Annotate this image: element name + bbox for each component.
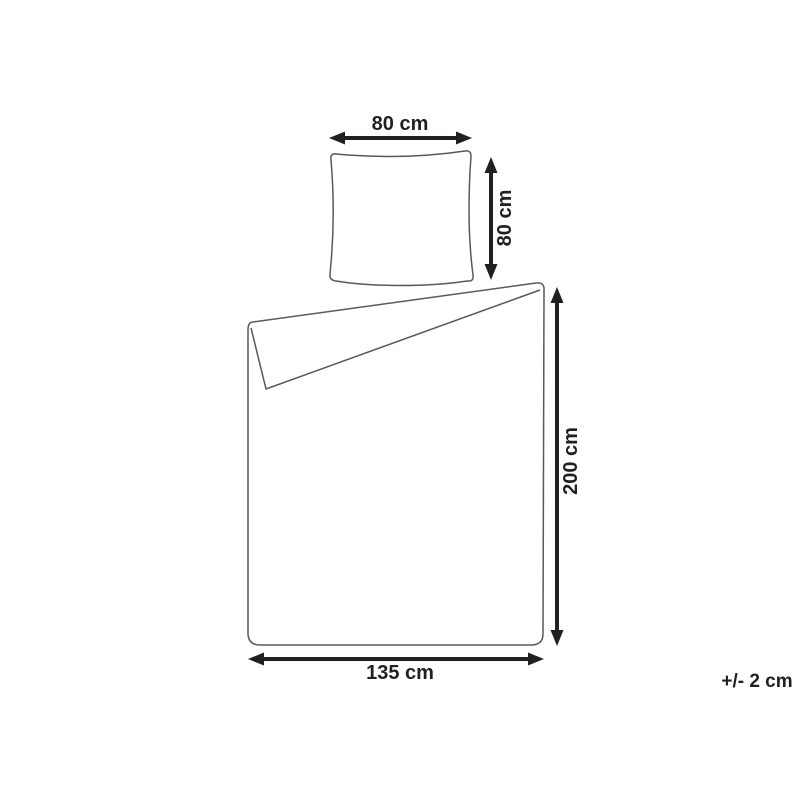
duvet-height-label: 200 cm <box>560 427 582 495</box>
duvet-width-arrowhead-right <box>528 653 544 666</box>
duvet-width-arrowhead-left <box>248 653 264 666</box>
pillow-width-arrowhead-left <box>329 132 345 145</box>
pillow-outline <box>330 151 473 286</box>
tolerance-label: +/- 2 cm <box>721 671 792 692</box>
pillow <box>330 151 473 286</box>
pillow-height-label: 80 cm <box>494 190 516 247</box>
duvet-fold-crease <box>251 290 540 389</box>
duvet-outline <box>248 283 544 645</box>
duvet-height-arrowhead-top <box>551 287 564 303</box>
pillow-height-arrowhead-bottom <box>485 264 498 280</box>
duvet-height-arrowhead-bottom <box>551 630 564 646</box>
product-dimensions-diagram: 80 cm 80 cm 200 cm 135 cm +/- 2 cm <box>0 0 800 800</box>
duvet-width-label: 135 cm <box>366 662 434 684</box>
pillow-height-arrowhead-top <box>485 157 498 173</box>
pillow-width-arrowhead-right <box>456 132 472 145</box>
diagram-canvas: 80 cm 80 cm 200 cm 135 cm +/- 2 cm <box>0 0 800 800</box>
duvet <box>248 283 544 645</box>
pillow-width-label: 80 cm <box>372 113 429 135</box>
